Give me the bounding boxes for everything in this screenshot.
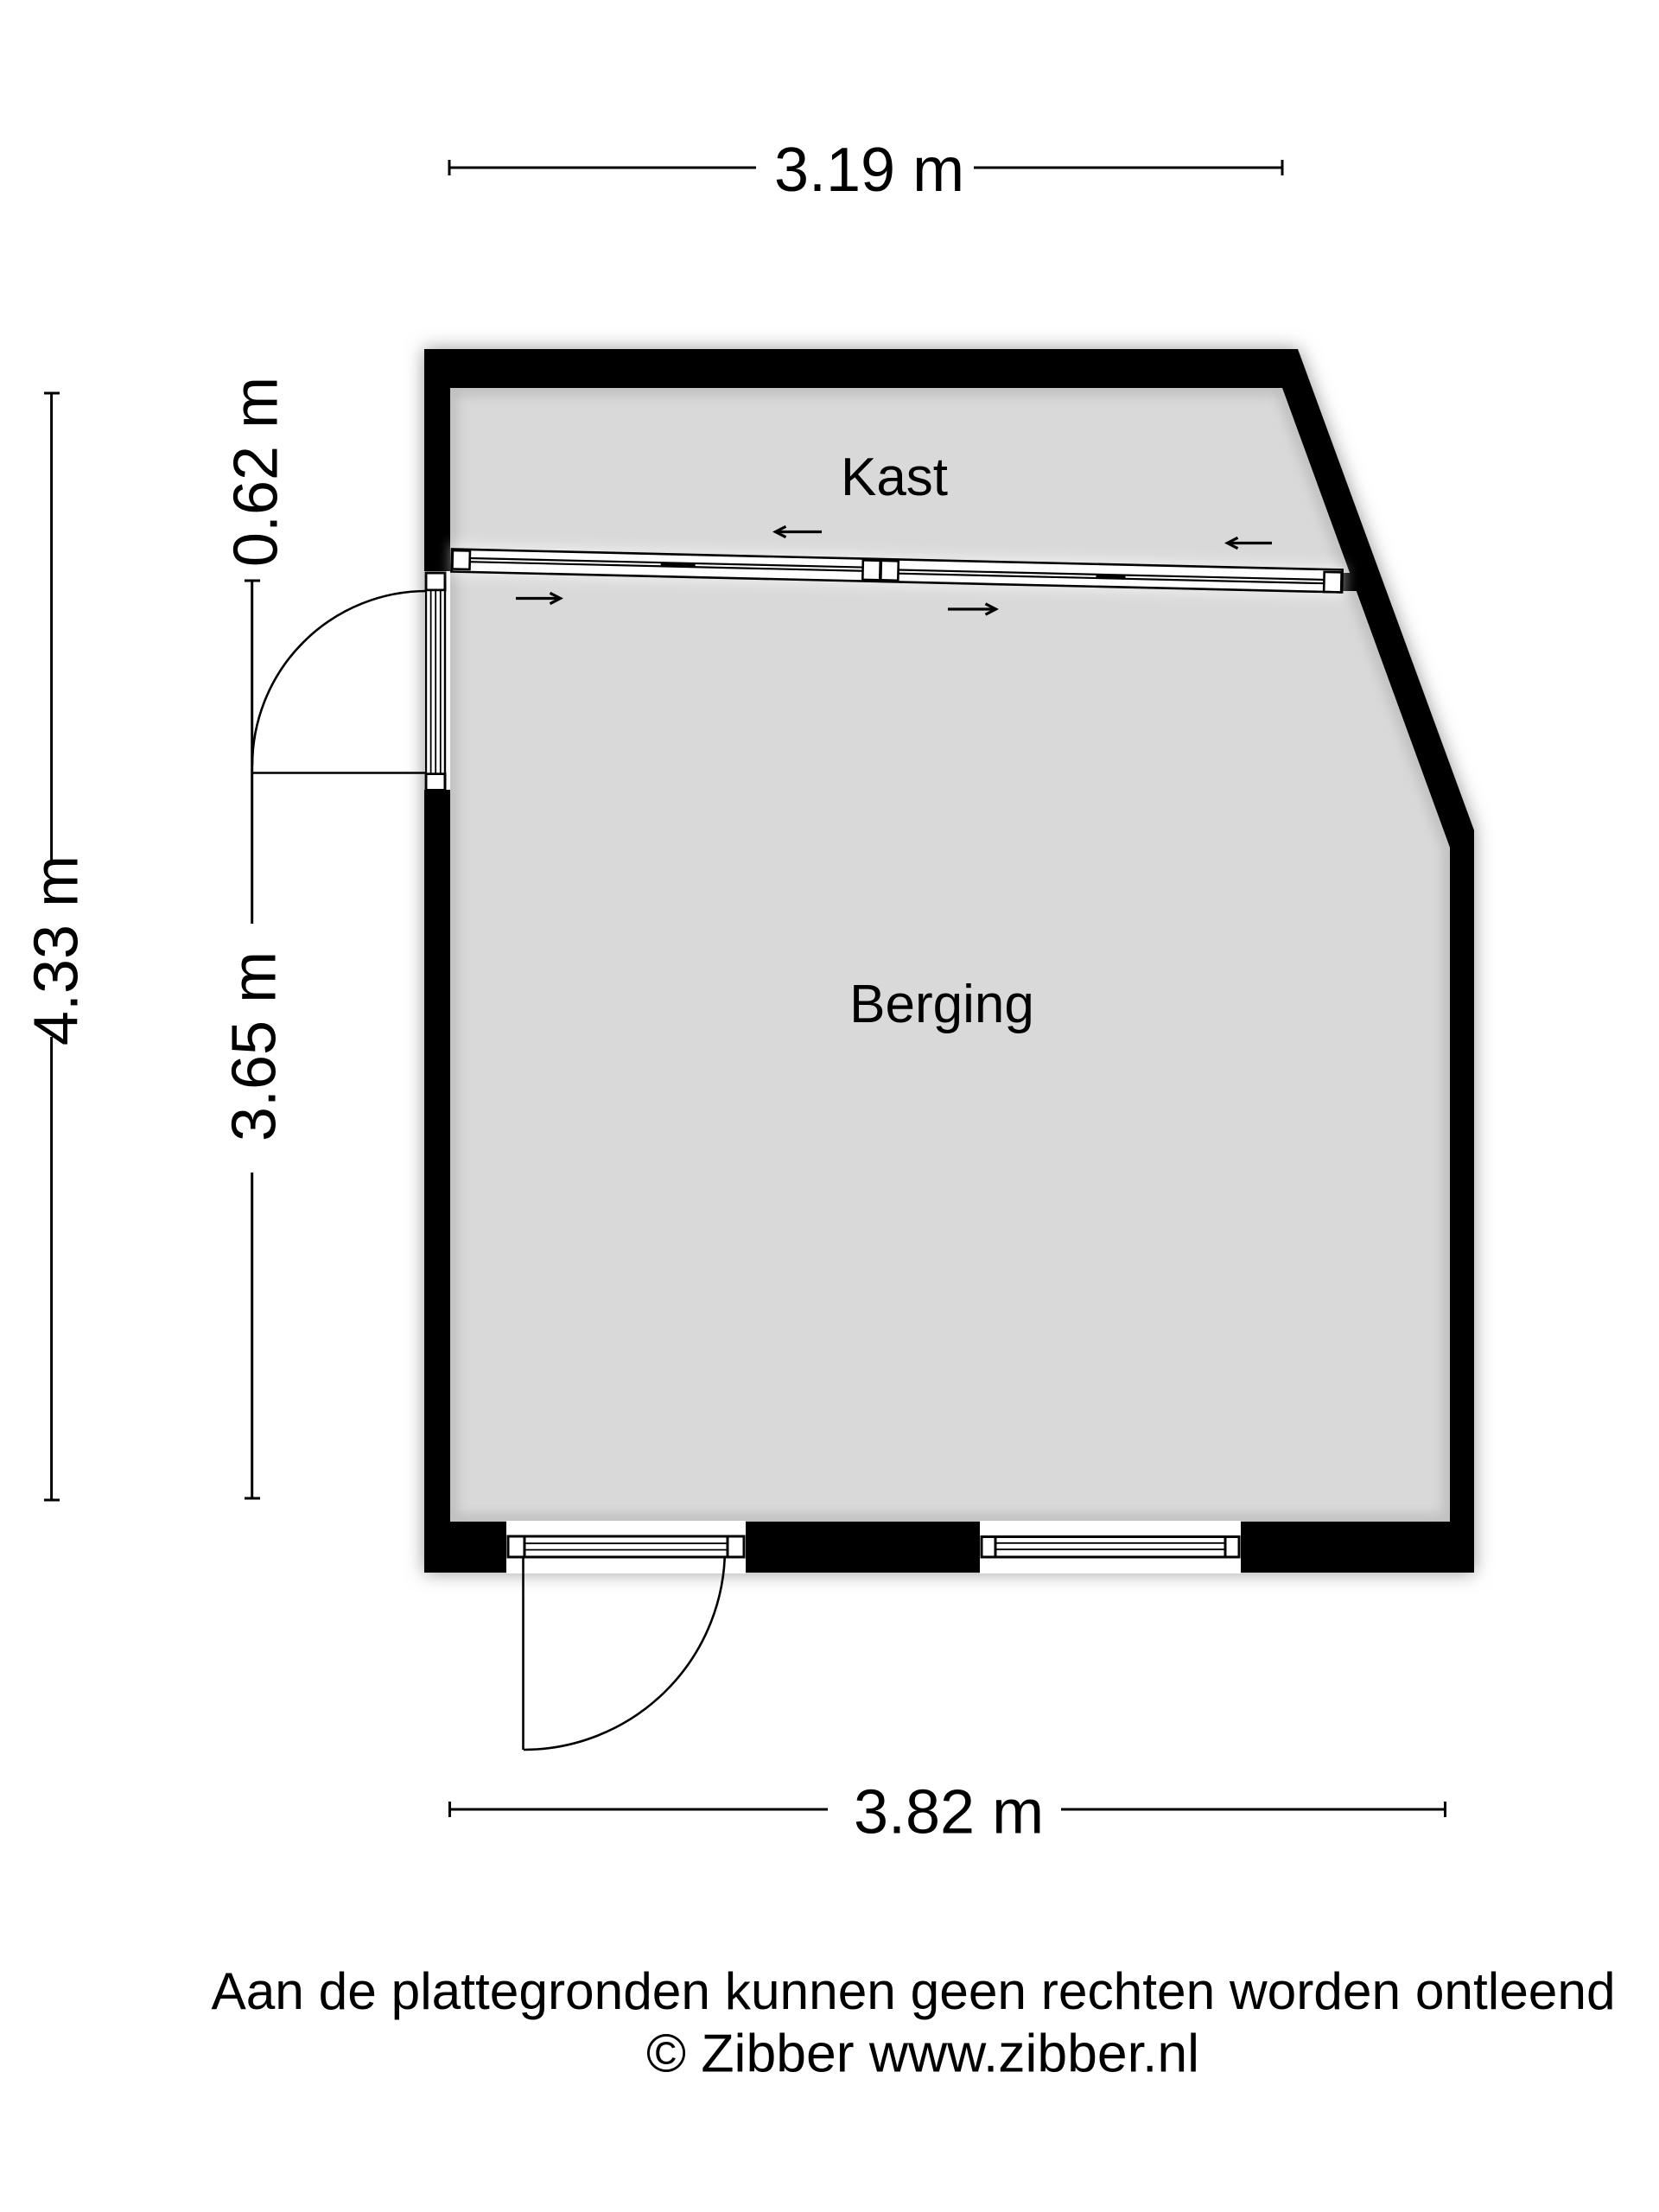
svg-text:© Zibber www.zibber.nl: © Zibber www.zibber.nl — [646, 2024, 1199, 2084]
svg-text:Aan de plattegronden kunnen ge: Aan de plattegronden kunnen geen rechten… — [211, 1961, 1615, 2020]
svg-text:3.19 m: 3.19 m — [774, 136, 964, 205]
svg-text:Kast: Kast — [841, 448, 948, 507]
svg-text:3.82 m: 3.82 m — [854, 1778, 1044, 1847]
svg-text:4.33 m: 4.33 m — [22, 855, 92, 1046]
svg-text:3.65 m: 3.65 m — [220, 951, 289, 1141]
svg-text:0.62 m: 0.62 m — [222, 377, 291, 567]
svg-text:Berging: Berging — [849, 975, 1034, 1034]
